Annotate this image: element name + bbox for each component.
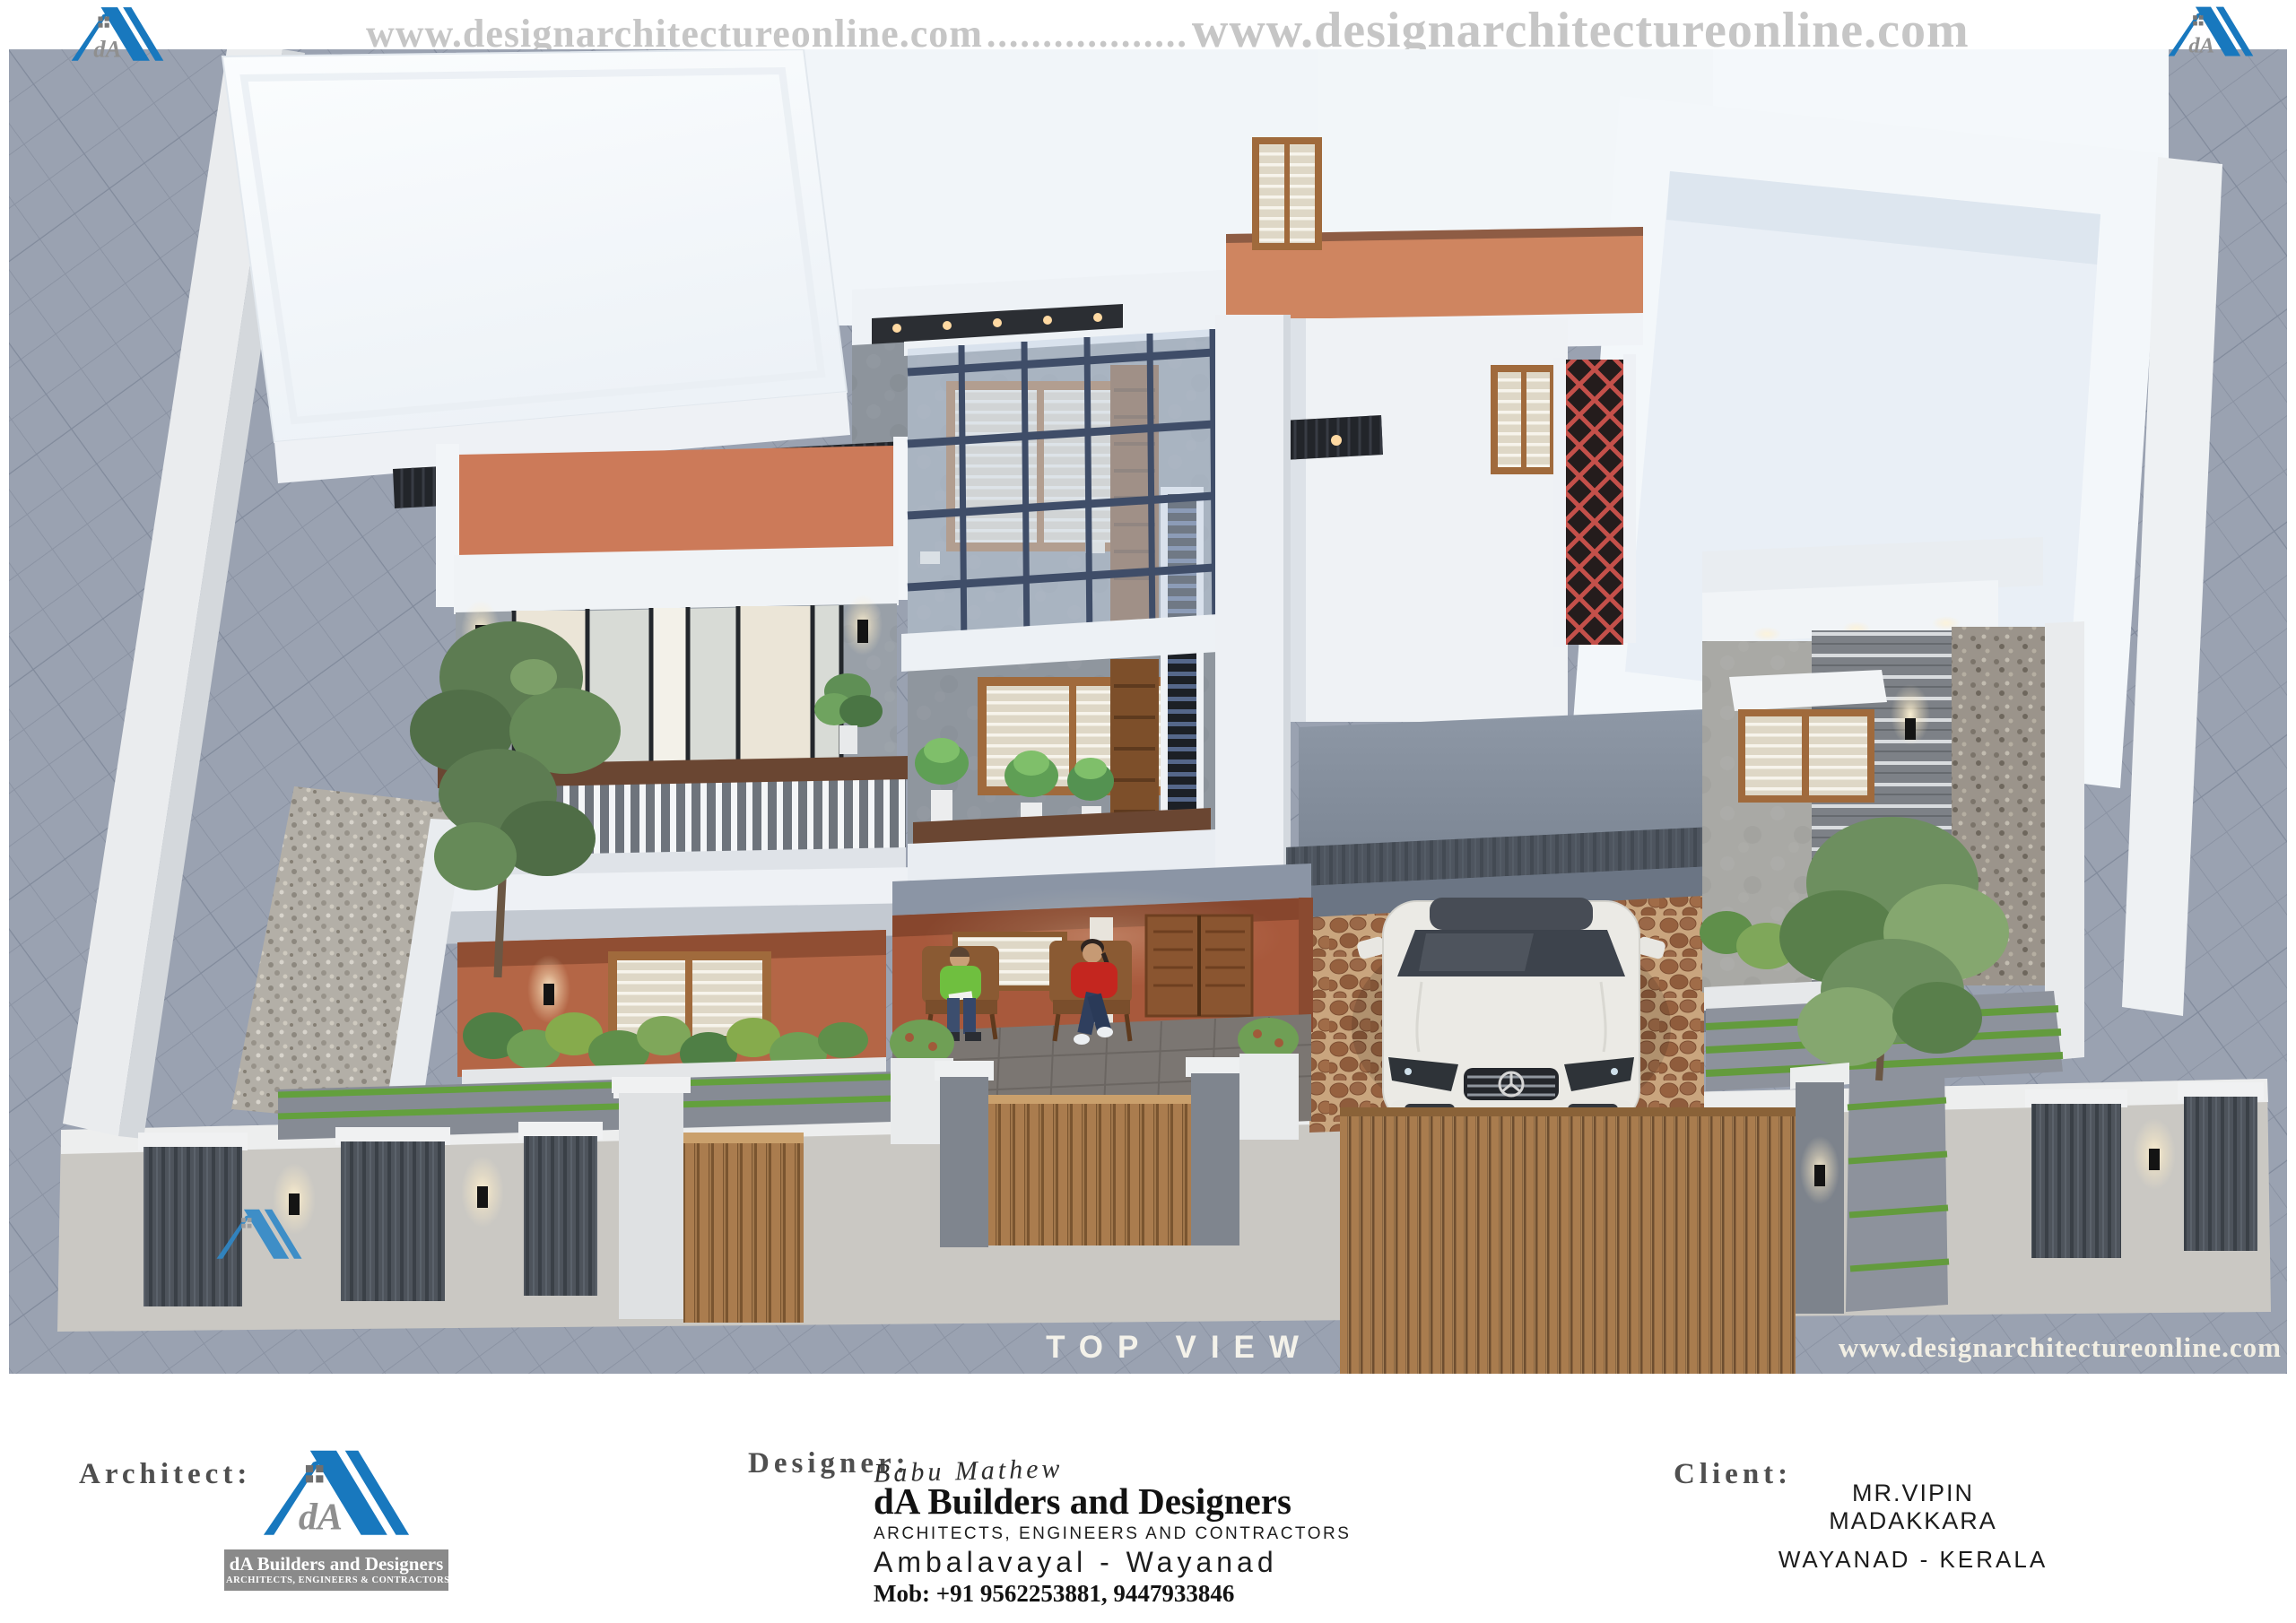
da-roof-logo-icon: dA	[49, 2, 186, 70]
car	[1352, 898, 1671, 1133]
logo-monogram: dA	[93, 36, 121, 63]
logo-monogram: dA	[2188, 34, 2214, 58]
carport-gate	[1340, 1063, 1849, 1374]
logo-firm-tagline: ARCHITECTS, ENGINEERS & CONTRACTORS	[226, 1575, 447, 1585]
client-name: MR.VIPIN MADAKKARA	[1765, 1480, 2061, 1535]
wall-lamp	[1905, 718, 1916, 740]
gate-panels-left	[138, 1122, 603, 1306]
client-location: WAYANAD - KERALA	[1765, 1546, 2061, 1574]
house-render-viewport: TOP VIEW www.designarchitectureonline.co…	[9, 49, 2287, 1374]
architect-logo: dA dA Builders and Designers ARCHITECTS,…	[224, 1442, 448, 1591]
da-roof-logo-icon: dA	[2149, 2, 2273, 65]
title-block: Architect: dA dA Builders and Designers …	[0, 1374, 2296, 1623]
balcony-terracotta-wall	[436, 437, 917, 614]
da-roof-logo-icon: dA	[241, 1442, 431, 1549]
wall-lamp	[289, 1193, 300, 1215]
red-jali-screen	[1553, 354, 1636, 647]
white-pilaster	[1215, 315, 1291, 950]
house-render-scene	[9, 49, 2287, 1374]
porch-double-door	[1146, 916, 1252, 1016]
designer-mobile: Mob: +91 9562253881, 9447933846	[874, 1580, 1234, 1608]
designer-firm-subtitle: ARCHITECTS, ENGINEERS AND CONTRACTORS	[874, 1524, 1351, 1544]
wood-window-upper-right	[1252, 137, 1322, 250]
wall-lamp	[477, 1186, 488, 1208]
logo-monogram: dA	[299, 1496, 343, 1538]
top-banner: www.designarchitectureonline.com .......…	[0, 0, 2296, 49]
wood-window-by-jali	[1491, 365, 1557, 474]
presentation-sheet: www.designarchitectureonline.com .......…	[0, 0, 2296, 1623]
wall-lamp	[2149, 1149, 2160, 1170]
client-info: MR.VIPIN MADAKKARA WAYANAD - KERALA	[1765, 1480, 2061, 1574]
designer-location: Ambalavayal - Wayanad	[874, 1546, 1278, 1579]
logo-banner: dA Builders and Designers ARCHITECTS, EN…	[224, 1549, 448, 1591]
designer-firm-name: dA Builders and Designers	[874, 1480, 1291, 1523]
left-wing-roof	[222, 49, 850, 483]
view-title: TOP VIEW	[973, 1330, 1386, 1366]
website-watermark: www.designarchitectureonline.com	[1839, 1332, 2282, 1364]
wall-lamp	[544, 984, 554, 1005]
wood-window-right	[1738, 709, 1874, 803]
logo-firm-name: dA Builders and Designers	[226, 1553, 447, 1575]
wall-lamp	[1814, 1165, 1825, 1186]
